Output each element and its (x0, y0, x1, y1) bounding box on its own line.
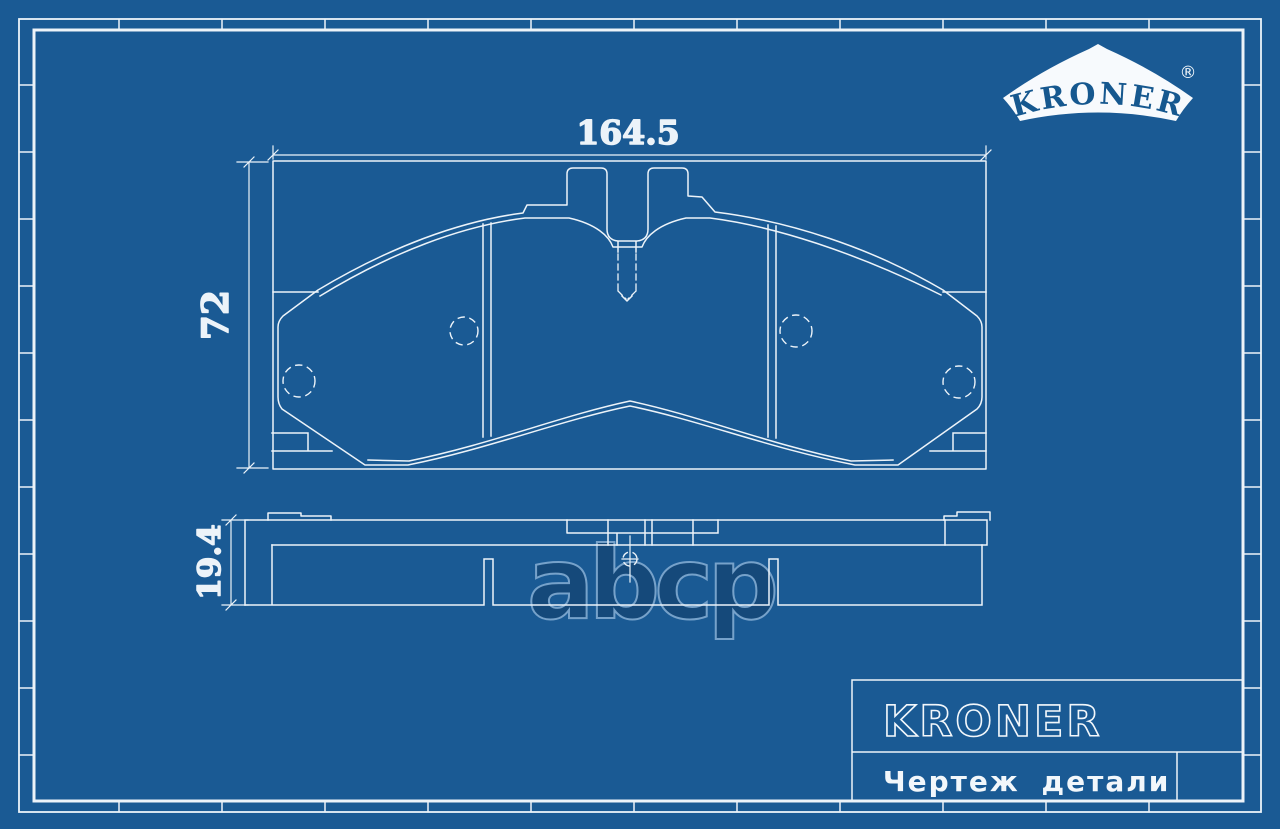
dimension-height-value: 72 (195, 290, 237, 340)
title-block-brand: KRONER (883, 697, 1102, 747)
blueprint-drawing: KRONER ® abcp abcp (0, 0, 1280, 829)
title-block-caption: Чертеж детали (883, 765, 1170, 798)
watermark-outline: abcp (527, 525, 775, 642)
dimension-thickness-value: 19.4 (192, 524, 228, 600)
dimension-width-value: 164.5 (576, 113, 679, 152)
registered-mark: ® (1180, 63, 1197, 83)
